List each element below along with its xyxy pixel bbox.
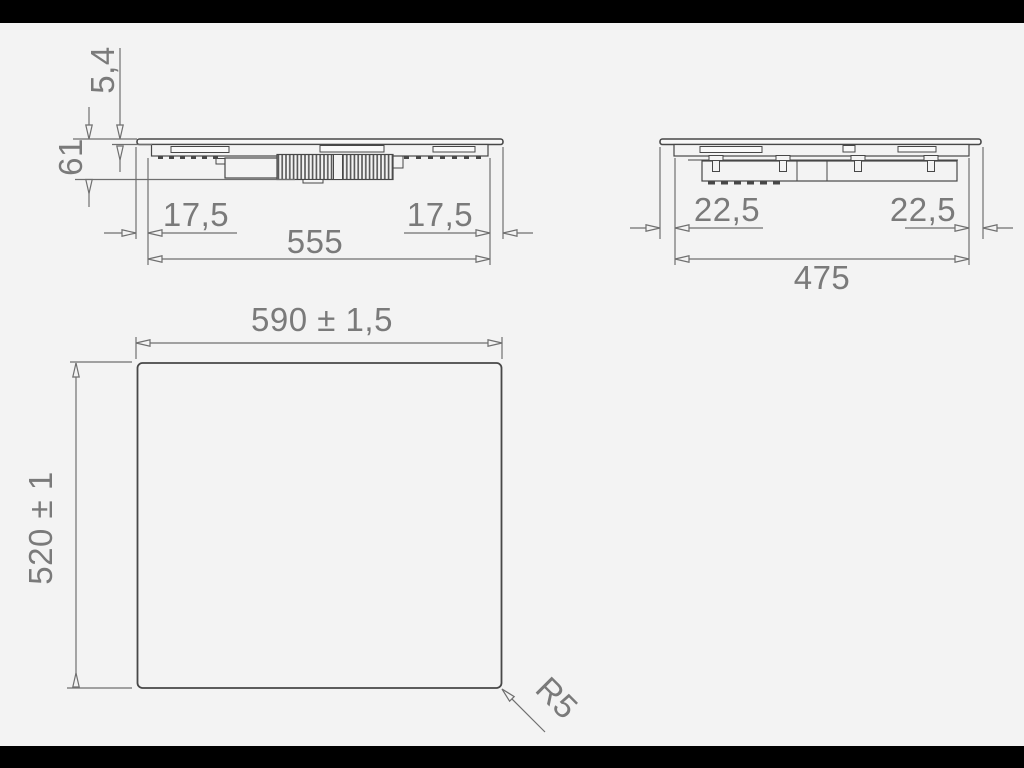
technical-drawing: 5,4 61 17,5 17,5 555	[0, 0, 1024, 768]
letterbox-bar-bottom	[0, 746, 1024, 768]
front-view-hob-profile	[137, 139, 503, 183]
drawing-canvas: 5,4 61 17,5 17,5 555	[0, 0, 1024, 768]
glass-panel-outline	[138, 363, 502, 688]
top-view: 590 ± 1,5 520 ± 1 R5	[22, 301, 585, 732]
dim-side-right-inset: 22,5	[890, 191, 956, 228]
dim-body-depth: 475	[794, 259, 851, 296]
dim-cutout-depth: 520 ± 1	[22, 471, 59, 584]
dim-cutout-width: 590 ± 1,5	[251, 301, 393, 338]
dim-corner-radius: R5	[529, 670, 586, 727]
dim-body-width: 555	[287, 223, 344, 260]
dim-side-left-inset: 22,5	[694, 191, 760, 228]
lower-casing-box	[702, 161, 957, 181]
front-side-view: 5,4 61 17,5 17,5 555	[52, 46, 533, 265]
dim-total-height: 61	[52, 138, 89, 176]
letterbox-bar-top	[0, 0, 1024, 23]
dim-front-left-inset: 17,5	[163, 196, 229, 233]
electronics-box	[225, 158, 278, 178]
glass-panel-section	[660, 139, 981, 145]
right-side-view: 22,5 22,5 475	[630, 139, 1013, 296]
glass-panel-section	[137, 139, 503, 145]
dim-front-right-inset: 17,5	[407, 196, 473, 233]
dim-glass-thickness: 5,4	[84, 46, 121, 93]
casing-nubs	[708, 182, 780, 185]
side-view-hob-profile	[660, 139, 981, 185]
